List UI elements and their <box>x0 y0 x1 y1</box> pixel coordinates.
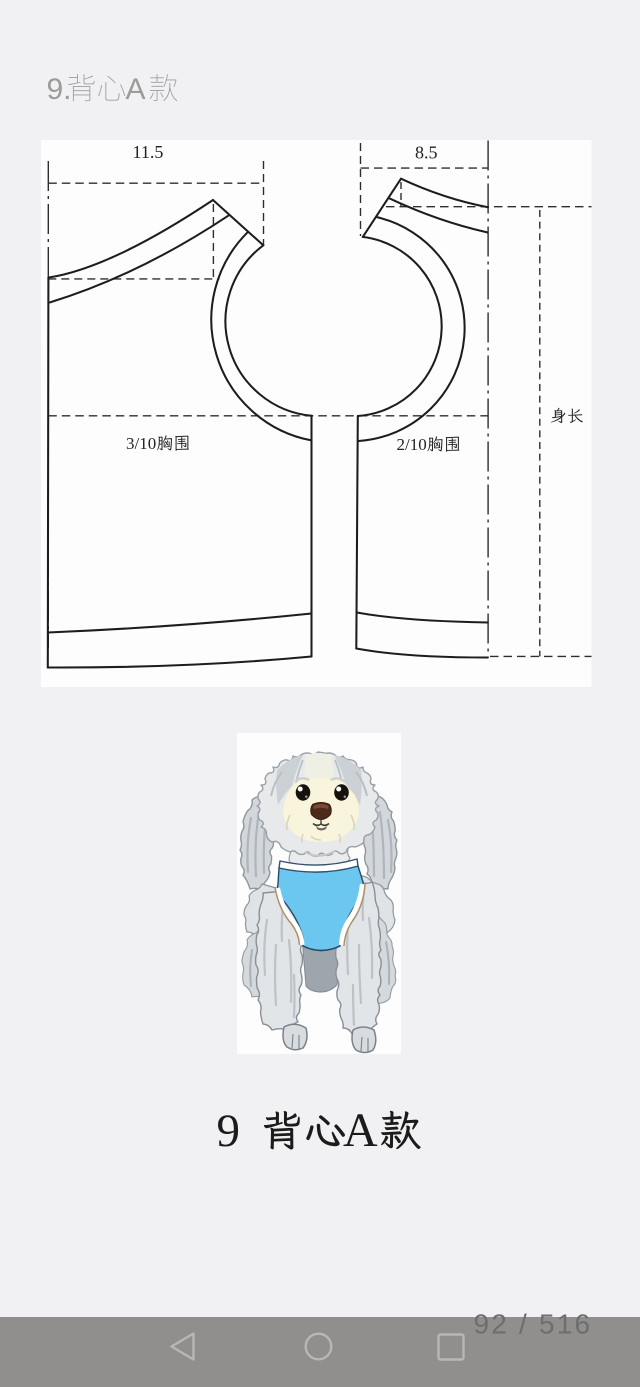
svg-text:11.5: 11.5 <box>133 142 164 162</box>
svg-text:2/10: 2/10 <box>397 435 427 454</box>
svg-text:92 / 516: 92 / 516 <box>474 1309 593 1340</box>
svg-text:8.5: 8.5 <box>415 143 438 163</box>
svg-text:9: 9 <box>217 1105 241 1157</box>
svg-text:A: A <box>343 1104 378 1157</box>
svg-text:9.: 9. <box>47 73 72 106</box>
svg-text:A: A <box>126 73 146 106</box>
svg-text:3/10: 3/10 <box>126 434 156 453</box>
